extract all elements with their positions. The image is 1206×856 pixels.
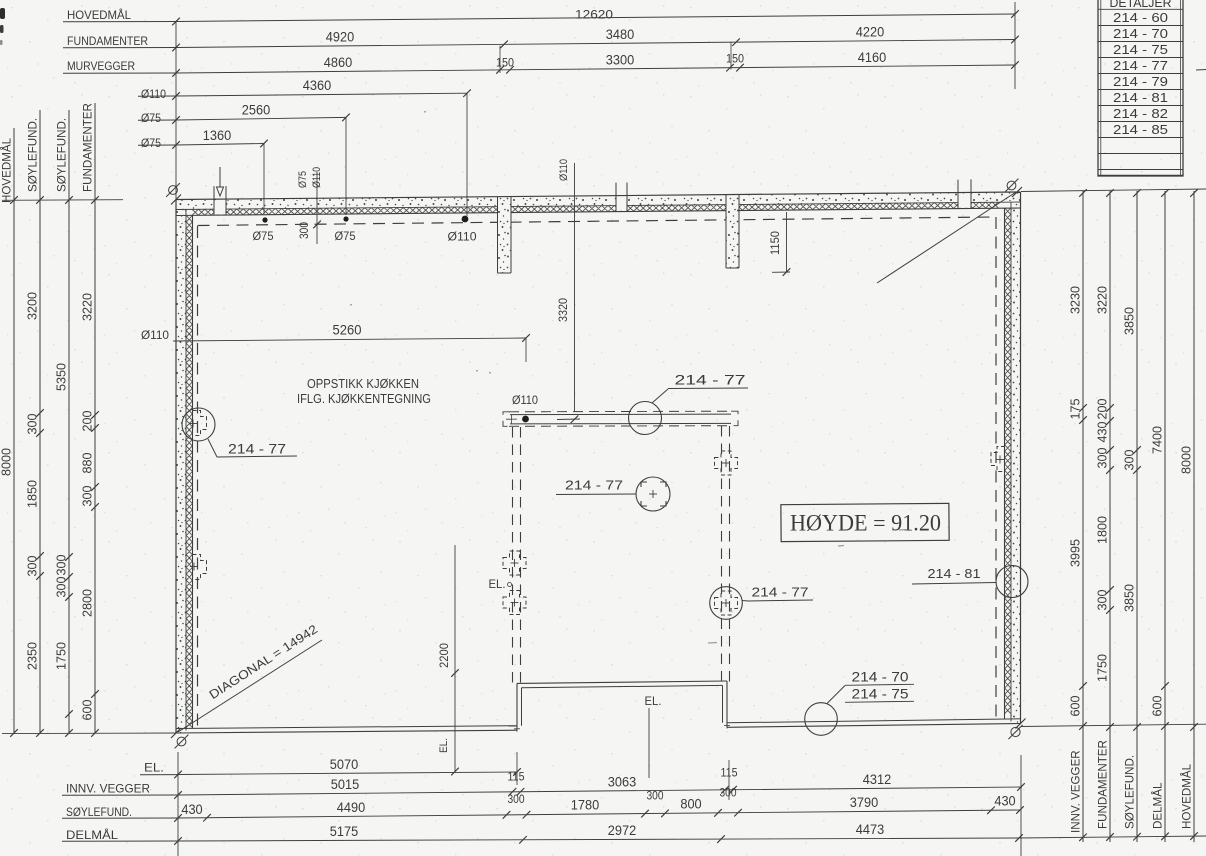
svg-text:HØYDE = 91.20: HØYDE = 91.20 — [790, 511, 941, 536]
svg-text:1360: 1360 — [203, 128, 231, 143]
svg-text:7400: 7400 — [1150, 426, 1165, 454]
svg-text:4920: 4920 — [326, 29, 354, 44]
svg-text:INNV. VEGGER: INNV. VEGGER — [66, 782, 150, 796]
svg-text:8000: 8000 — [1179, 446, 1194, 474]
svg-text:214 - 81: 214 - 81 — [928, 566, 981, 581]
svg-text:Ø110: Ø110 — [141, 328, 169, 342]
svg-text:800: 800 — [680, 797, 701, 812]
svg-text:214 - 85: 214 - 85 — [1113, 122, 1168, 137]
svg-text:3220: 3220 — [1095, 286, 1110, 314]
svg-text:600: 600 — [1068, 696, 1083, 717]
svg-text:DELMÅL: DELMÅL — [66, 827, 118, 842]
svg-text:1750: 1750 — [54, 642, 69, 670]
svg-text:430: 430 — [1095, 422, 1110, 443]
svg-text:EL.: EL. — [489, 579, 506, 591]
svg-text:3063: 3063 — [608, 774, 636, 789]
svg-text:OPPSTIKK KJØKKEN: OPPSTIKK KJØKKEN — [307, 376, 419, 391]
svg-text:Ø110: Ø110 — [512, 393, 538, 407]
svg-text:3480: 3480 — [606, 27, 634, 42]
svg-text:3230: 3230 — [1068, 286, 1083, 314]
svg-text:DELMÅL: DELMÅL — [1152, 782, 1165, 829]
svg-text:EL.: EL. — [645, 696, 662, 708]
svg-text:4160: 4160 — [858, 50, 886, 65]
svg-text:4490: 4490 — [337, 800, 365, 815]
svg-text:SØYLEFUND.: SØYLEFUND. — [1124, 755, 1137, 829]
svg-text:1150: 1150 — [770, 231, 782, 255]
svg-text:214 - 77: 214 - 77 — [675, 373, 746, 389]
svg-text:1750: 1750 — [1095, 654, 1110, 682]
svg-text:115: 115 — [508, 770, 525, 784]
svg-text:214 - 70: 214 - 70 — [1113, 26, 1168, 41]
svg-text:880: 880 — [80, 453, 95, 474]
svg-text:5070: 5070 — [330, 757, 358, 772]
svg-text:3850: 3850 — [1122, 307, 1137, 335]
svg-text:SØYLEFUND.: SØYLEFUND. — [56, 118, 69, 192]
svg-text:3300: 3300 — [606, 52, 634, 67]
svg-text:1800: 1800 — [1095, 516, 1110, 544]
svg-text:Ø75: Ø75 — [141, 136, 161, 150]
svg-text:600: 600 — [80, 700, 95, 721]
svg-text:5015: 5015 — [331, 777, 359, 792]
svg-text:200: 200 — [1095, 399, 1110, 420]
svg-text:2560: 2560 — [242, 102, 270, 117]
svg-text:300: 300 — [720, 786, 737, 800]
svg-text:2800: 2800 — [80, 589, 95, 617]
svg-text:214 - 77: 214 - 77 — [752, 585, 809, 600]
svg-text:FUNDAMENTER: FUNDAMENTER — [67, 34, 148, 48]
svg-text:1850: 1850 — [25, 480, 40, 508]
svg-text:300: 300 — [1122, 450, 1137, 471]
svg-text:SØYLEFUND.: SØYLEFUND. — [27, 118, 40, 192]
svg-text:Ø75: Ø75 — [335, 229, 356, 243]
svg-text:430: 430 — [181, 802, 202, 817]
svg-text:150: 150 — [496, 56, 514, 70]
svg-text:2972: 2972 — [608, 823, 636, 838]
svg-text:EL.: EL. — [438, 738, 450, 753]
svg-text:4360: 4360 — [303, 78, 331, 93]
svg-text:300: 300 — [25, 414, 40, 435]
svg-text:4473: 4473 — [856, 822, 884, 837]
svg-text:HOVEDMÅL: HOVEDMÅL — [1, 137, 14, 203]
svg-text:600: 600 — [1150, 696, 1165, 717]
svg-text:Ø75: Ø75 — [141, 111, 161, 125]
svg-text:214 - 77: 214 - 77 — [1113, 58, 1168, 73]
svg-text:3220: 3220 — [80, 293, 95, 321]
svg-text:SØYLEFUND.: SØYLEFUND. — [66, 805, 132, 819]
svg-text:Ø110: Ø110 — [141, 87, 166, 101]
svg-text:1780: 1780 — [571, 798, 599, 813]
svg-text:Ø110: Ø110 — [448, 230, 477, 244]
svg-text:2200: 2200 — [439, 643, 451, 668]
svg-text:300: 300 — [508, 792, 525, 806]
svg-text:300: 300 — [1095, 448, 1110, 469]
svg-text:DETALJER: DETALJER — [1110, 0, 1172, 10]
svg-text:Ø110: Ø110 — [558, 159, 570, 181]
svg-text:FUNDAMENTER: FUNDAMENTER — [1097, 740, 1110, 829]
svg-text:300: 300 — [647, 789, 664, 803]
svg-text:430: 430 — [994, 794, 1015, 809]
svg-text:200: 200 — [80, 411, 95, 432]
svg-text:4860: 4860 — [324, 55, 352, 70]
svg-text:EL.: EL. — [144, 761, 164, 775]
svg-text:214 - 77: 214 - 77 — [565, 478, 623, 493]
svg-text:214 - 75: 214 - 75 — [1113, 42, 1168, 57]
svg-text:4220: 4220 — [856, 24, 884, 39]
svg-text:HOVEDMÅL: HOVEDMÅL — [1181, 763, 1194, 829]
svg-text:214 - 75: 214 - 75 — [852, 687, 909, 702]
svg-text:5175: 5175 — [330, 824, 358, 839]
svg-text:214 - 81: 214 - 81 — [1113, 90, 1168, 105]
svg-text:FUNDAMENTER: FUNDAMENTER — [82, 103, 95, 192]
svg-text:214 - 77: 214 - 77 — [228, 442, 286, 457]
svg-text:175: 175 — [1068, 399, 1083, 420]
svg-text:INNV. VEGGER: INNV. VEGGER — [1070, 750, 1083, 833]
svg-text:8000: 8000 — [0, 448, 14, 476]
svg-text:MURVEGGER: MURVEGGER — [67, 59, 135, 73]
svg-text:214 - 60: 214 - 60 — [1113, 10, 1168, 25]
svg-text:5350: 5350 — [54, 363, 69, 391]
svg-text:300: 300 — [54, 555, 69, 576]
svg-text:Ø75: Ø75 — [253, 229, 274, 243]
svg-text:4312: 4312 — [863, 772, 891, 787]
svg-text:214 - 82: 214 - 82 — [1113, 106, 1168, 121]
svg-text:3320: 3320 — [558, 298, 570, 322]
svg-text:214 - 70: 214 - 70 — [852, 670, 909, 685]
svg-text:3790: 3790 — [850, 795, 878, 810]
svg-text:214 - 79: 214 - 79 — [1113, 74, 1168, 89]
svg-text:300: 300 — [54, 577, 69, 598]
svg-text:5260: 5260 — [333, 323, 362, 338]
svg-text:HOVEDMÅL: HOVEDMÅL — [67, 7, 131, 22]
svg-text:IFLG. KJØKKENTEGNING: IFLG. KJØKKENTEGNING — [297, 391, 431, 406]
svg-text:3200: 3200 — [25, 292, 40, 320]
svg-text:3995: 3995 — [1068, 539, 1083, 567]
svg-text:3850: 3850 — [1122, 584, 1137, 612]
svg-text:12620: 12620 — [575, 8, 613, 22]
svg-text:Ø110: Ø110 — [311, 167, 323, 188]
svg-text:2350: 2350 — [25, 642, 40, 670]
svg-text:Ø75: Ø75 — [297, 171, 309, 188]
svg-text:150: 150 — [726, 52, 744, 66]
svg-text:300: 300 — [1095, 590, 1110, 611]
svg-text:300: 300 — [25, 556, 40, 577]
svg-text:300: 300 — [80, 486, 95, 507]
svg-text:300: 300 — [299, 222, 311, 239]
